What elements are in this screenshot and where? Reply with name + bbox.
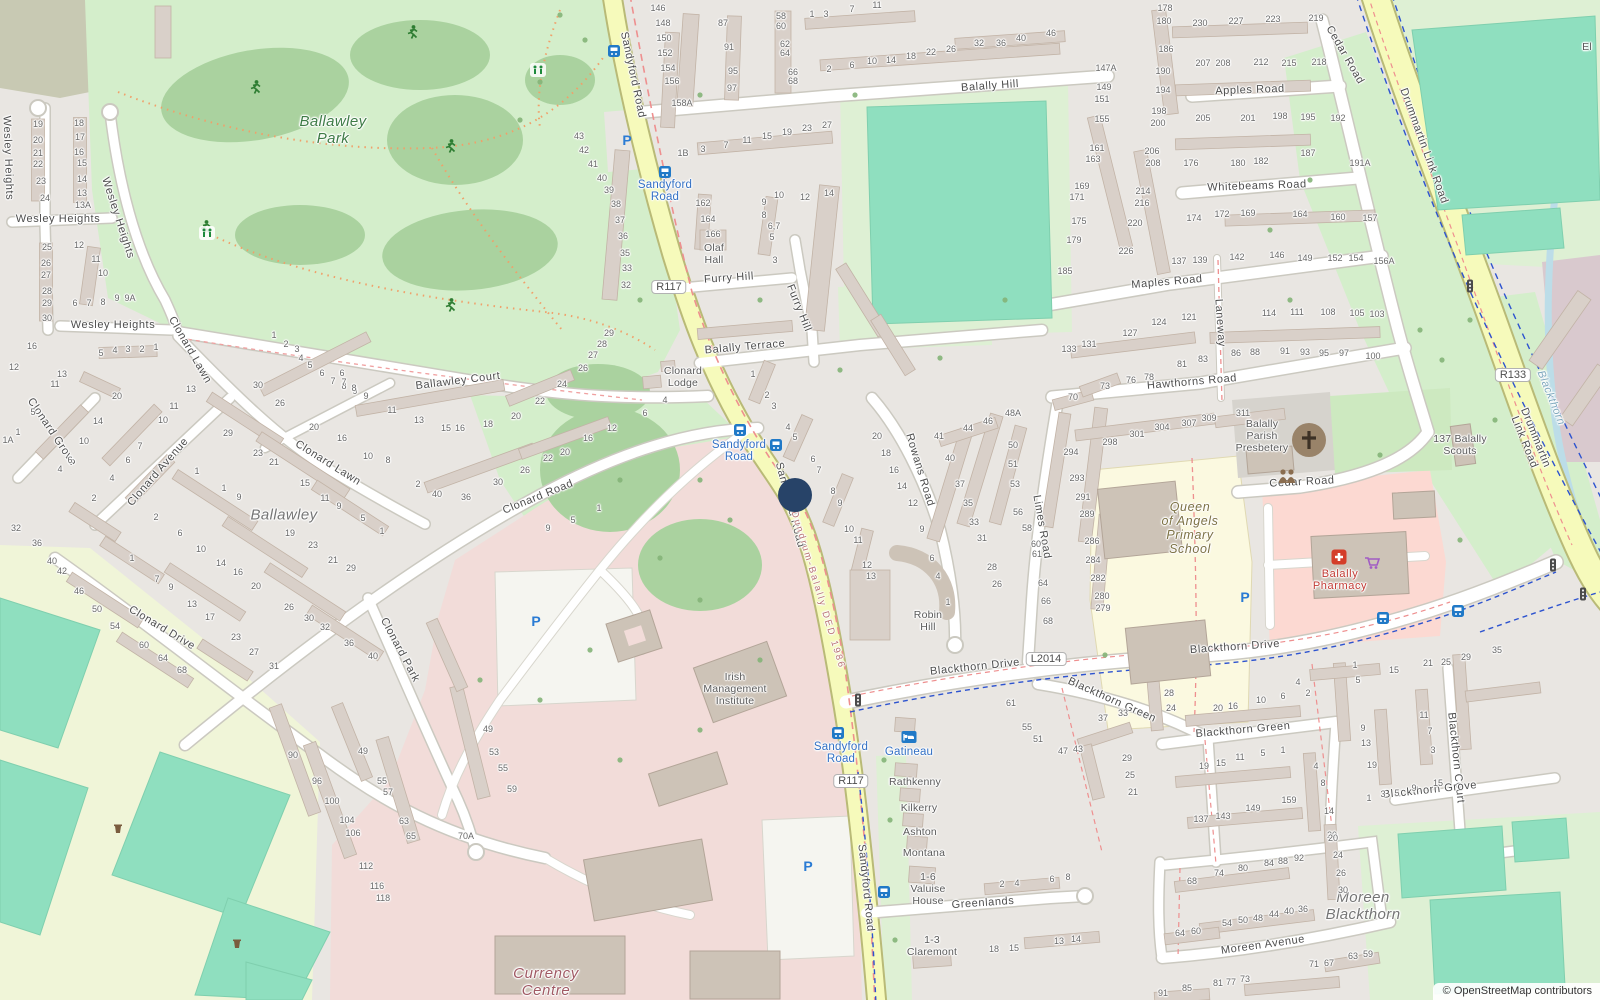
location-marker[interactable] <box>778 478 812 512</box>
attribution[interactable]: © OpenStreetMap contributors <box>1433 983 1600 1000</box>
route-badge: R117 <box>833 774 868 788</box>
route-badge: R133 <box>1495 368 1531 382</box>
route-badge: L2014 <box>1026 652 1067 666</box>
route-badge: R117 <box>651 280 686 294</box>
map-canvas[interactable]: Sandyford RoadSandyford RoadSandyford Ro… <box>0 0 1600 1000</box>
